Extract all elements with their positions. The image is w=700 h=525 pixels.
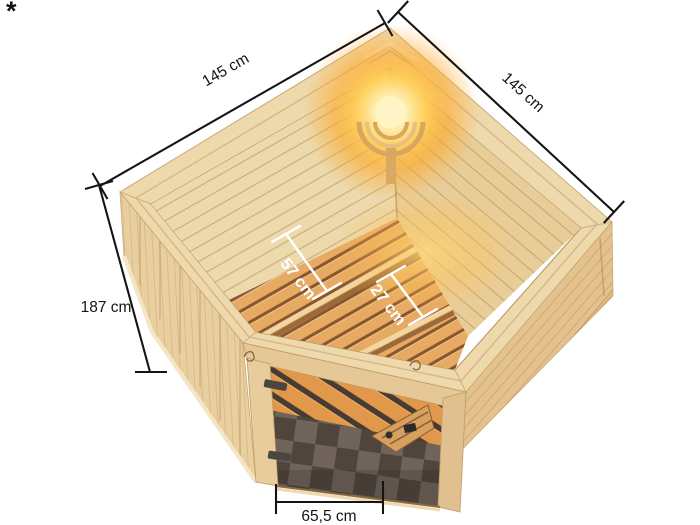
dimension-label-door-width: 65,5 cm — [301, 508, 356, 525]
lamp-light-spill — [333, 190, 517, 314]
dimension-label-height-left: 187 cm — [81, 299, 132, 316]
corner-lamp — [303, 24, 479, 200]
door-handle — [385, 431, 392, 438]
dimension-label-width-right: 145 cm — [498, 69, 547, 116]
dimension-label-width-left: 145 cm — [199, 50, 252, 90]
door-right-stile — [438, 392, 466, 512]
sauna-illustration: 145 cm 145 cm 187 cm 57 cm 27 cm — [0, 0, 700, 525]
product-diagram-canvas: * — [0, 0, 700, 525]
